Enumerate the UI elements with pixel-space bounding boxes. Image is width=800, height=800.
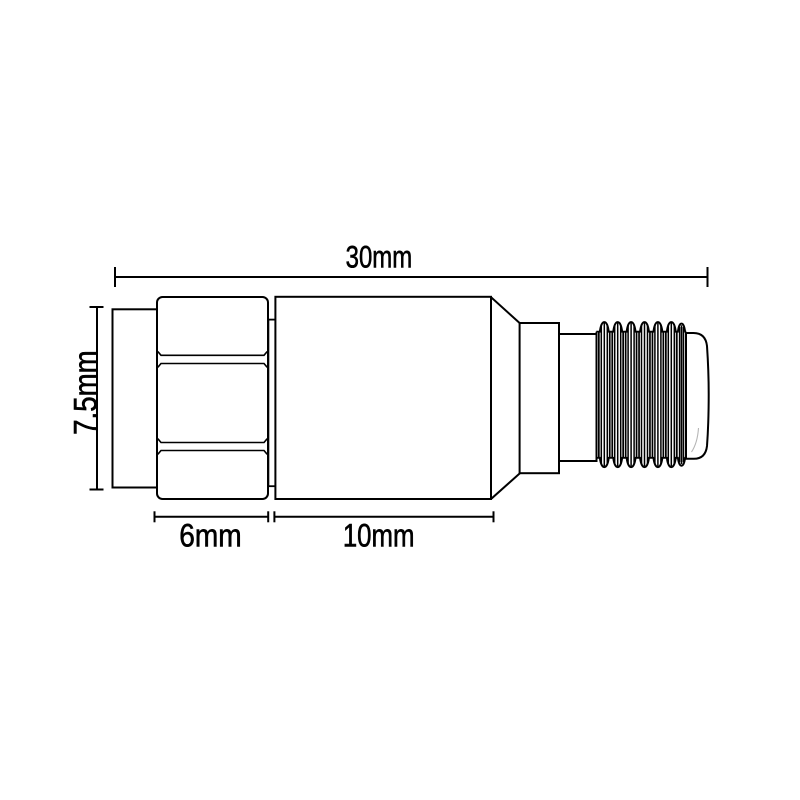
svg-text:6mm: 6mm — [179, 519, 241, 554]
svg-text:7.5mm: 7.5mm — [68, 350, 104, 434]
svg-text:10mm: 10mm — [343, 518, 415, 555]
svg-text:30mm: 30mm — [346, 239, 413, 274]
